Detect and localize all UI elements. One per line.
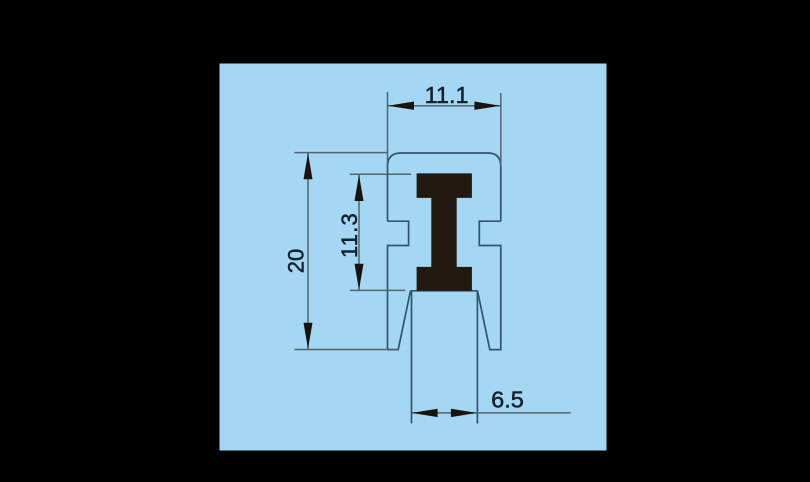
svg-text:11.1: 11.1 — [425, 82, 469, 108]
svg-text:11.3: 11.3 — [337, 212, 362, 258]
svg-text:6.5: 6.5 — [491, 387, 524, 413]
svg-text:20: 20 — [284, 249, 309, 273]
